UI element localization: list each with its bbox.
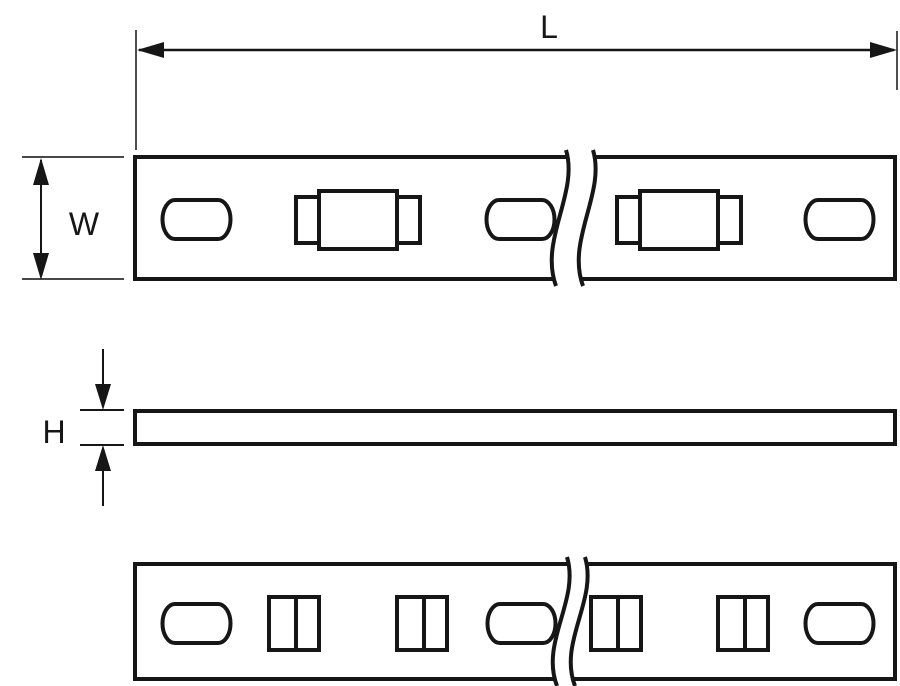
arrowhead-left-icon	[137, 42, 164, 58]
arrowhead-up-icon	[33, 158, 49, 185]
break-line-right	[571, 557, 588, 686]
bottom-view-left-piece-outline	[135, 564, 568, 679]
double-slot-feature	[718, 597, 768, 650]
break-line-right	[579, 150, 596, 286]
top-view-right-piece-outline	[581, 157, 895, 279]
arrowhead-down-icon	[33, 253, 49, 280]
double-slot-feature	[269, 597, 319, 650]
lance-feature	[617, 191, 741, 249]
width-dimension: W	[22, 157, 124, 280]
slot-obround	[487, 200, 555, 239]
width-label: W	[69, 206, 100, 242]
lance-center	[319, 191, 397, 249]
slot-obround	[163, 200, 231, 239]
lance-shoulder-left	[617, 197, 640, 243]
strip-dimension-drawing: L	[0, 0, 900, 686]
lance-shoulder-right	[718, 197, 741, 243]
double-slot-feature	[397, 597, 447, 650]
side-view-outline	[135, 411, 895, 444]
slot-obround	[488, 604, 556, 643]
lance-shoulder-right	[397, 197, 420, 243]
slot-obround	[806, 604, 874, 643]
lance-center	[640, 191, 718, 249]
arrowhead-right-icon	[870, 42, 897, 58]
side-view	[135, 411, 895, 444]
technical-drawing-canvas: L	[0, 0, 900, 686]
arrowhead-up-icon	[95, 445, 111, 471]
arrowhead-down-icon	[95, 384, 111, 410]
length-label: L	[540, 9, 558, 45]
bottom-view	[135, 557, 895, 686]
height-dimension: H	[42, 349, 124, 506]
height-label: H	[42, 414, 65, 450]
top-view	[135, 150, 895, 286]
lance-shoulder-left	[296, 197, 319, 243]
slot-obround	[163, 604, 231, 643]
double-slot-feature	[591, 597, 641, 650]
length-dimension: L	[136, 9, 897, 150]
top-view-left-piece-outline	[135, 157, 568, 279]
slot-obround	[806, 200, 874, 239]
bottom-view-right-piece-outline	[573, 564, 895, 679]
lance-feature	[296, 191, 420, 249]
